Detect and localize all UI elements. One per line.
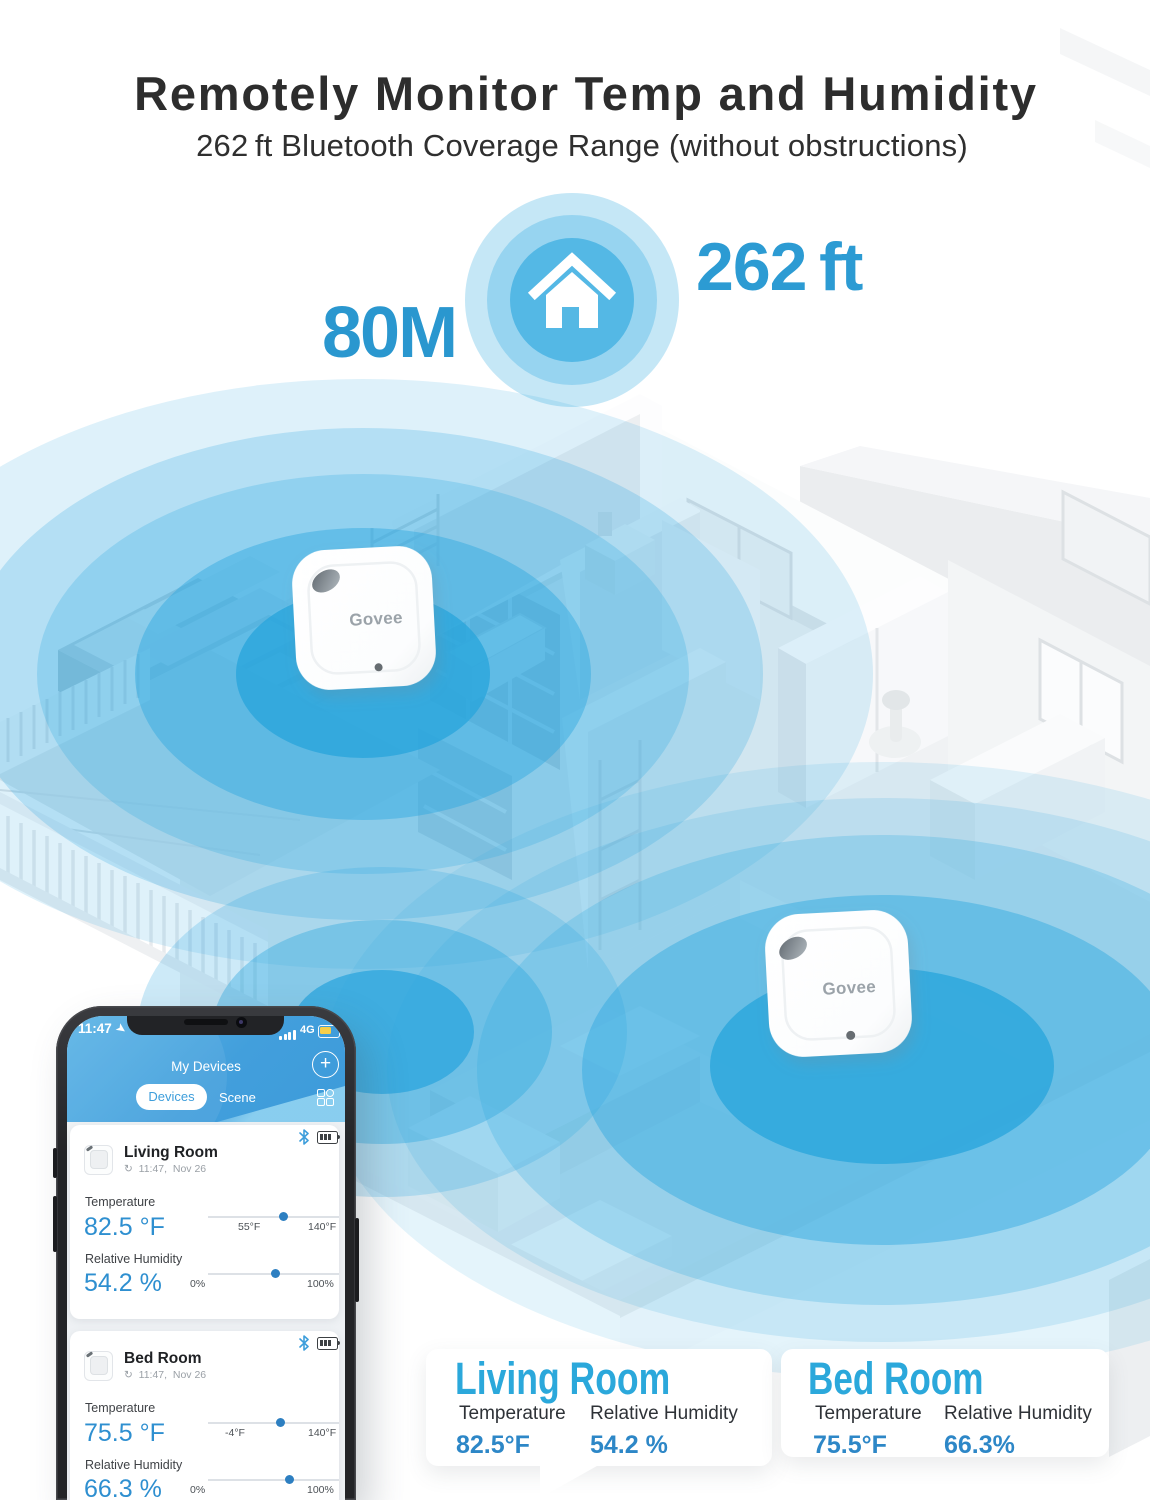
svg-text:Govee: Govee bbox=[822, 977, 876, 999]
svg-text:Govee: Govee bbox=[349, 608, 403, 630]
